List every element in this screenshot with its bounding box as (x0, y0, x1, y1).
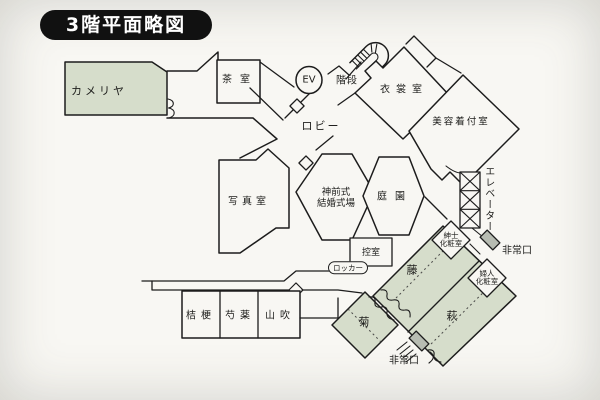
room-label-lobby: ロビー (302, 121, 341, 134)
room-label-kiku: 菊 (359, 317, 370, 330)
room-label-shashinshitsu: 写真室 (228, 196, 270, 208)
room-label-ishoshitsu: 衣裳室 (380, 84, 428, 96)
room-label-shinzenshiki: 神前式 結婚式場 (317, 188, 355, 210)
room-label-kikyo: 桔梗 (186, 310, 216, 322)
room-label-elevator: エレベーター (482, 166, 494, 232)
wall-chashitsu-ev (260, 62, 294, 87)
room-label-kaidan: 階段 (336, 75, 358, 87)
corridor-wall-upper (167, 52, 218, 71)
wall-teien-keshoshitsu (425, 197, 447, 219)
room-label-teien: 庭園 (377, 191, 413, 203)
room-label-shinshi-keshoshitsu: 紳士 化粧室 (440, 232, 463, 249)
room-label-kameriya: カメリヤ (71, 86, 127, 99)
corridor-bottom-upper-wall (142, 271, 331, 281)
label-emergency-exit-lower: 非常口 (389, 355, 419, 367)
room-label-fujin-keshoshitsu: 婦人 化粧室 (476, 270, 499, 287)
room-label-locker: ロッカー (328, 261, 368, 274)
room-label-yamabuki: 山吹 (265, 310, 295, 322)
corridor-bottom-wall-east (302, 290, 362, 293)
corridor-bottom-lower-wall (152, 281, 290, 290)
emergency-exit-upper-icon (480, 230, 500, 250)
room-label-ev: EV (302, 74, 315, 86)
room-label-hagi: 萩 (447, 311, 458, 324)
plan-title: 3階平面略図 (40, 10, 212, 40)
wall-lobby-shinzen (316, 136, 333, 150)
wall-ishoshitsu-lobby (338, 93, 355, 105)
room-label-chashitsu: 茶室 (222, 74, 258, 86)
room-label-shakuyaku: 芍薬 (225, 310, 255, 322)
wall-ev-kaidan-peak (328, 66, 349, 75)
floor-plan-drawing (0, 0, 600, 400)
kameriya-door-squiggle (168, 99, 174, 118)
floor-plan-page: 3階平面略図 カメリヤ 茶室 EV 階段 衣裳室 美容着付室 ロビー 写真室 神… (0, 0, 600, 400)
room-label-hikaeshitsu: 控室 (362, 248, 380, 258)
room-label-fuji: 藤 (407, 265, 418, 278)
wall-chashitsu-lobby (250, 88, 283, 120)
label-emergency-exit-upper: 非常口 (502, 245, 532, 257)
room-label-biyo-kitsuke: 美容着付室 (432, 118, 490, 129)
wall-row-east (300, 298, 338, 318)
door-diamond-icon-2 (299, 156, 313, 170)
elevator-shaft-icon (460, 172, 480, 228)
corridor-wall-lower (167, 118, 277, 158)
